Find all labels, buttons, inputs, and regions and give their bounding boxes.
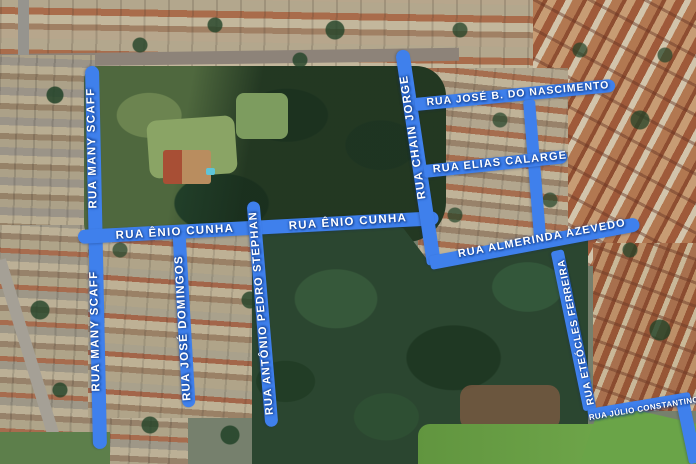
satellite-clearing-2 xyxy=(236,93,288,139)
satellite-block-left-urban xyxy=(0,55,95,237)
satellite-pool xyxy=(206,168,215,175)
map-canvas[interactable]: RUA MANY SCAFFRUA MANY SCAFFRUA ÊNIO CUN… xyxy=(0,0,696,464)
satellite-block-bottomright-urban xyxy=(593,243,696,411)
satellite-house-in-forest xyxy=(163,150,211,184)
